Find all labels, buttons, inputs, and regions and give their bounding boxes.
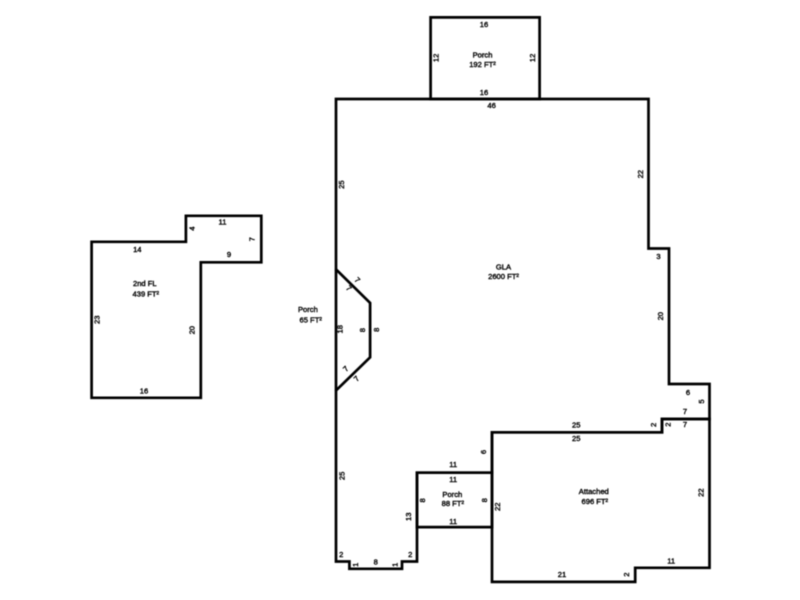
svg-text:11: 11 (667, 556, 675, 565)
svg-text:20: 20 (656, 312, 665, 320)
svg-text:Attached: Attached (579, 487, 609, 496)
svg-text:2: 2 (664, 422, 673, 426)
svg-text:8: 8 (374, 558, 378, 567)
svg-text:65 FT²: 65 FT² (300, 315, 323, 324)
svg-text:11: 11 (449, 475, 457, 484)
svg-text:7: 7 (248, 237, 257, 241)
svg-text:2: 2 (408, 550, 412, 559)
svg-text:8: 8 (418, 498, 427, 502)
svg-text:11: 11 (449, 460, 457, 469)
svg-text:192 FT²: 192 FT² (469, 60, 496, 69)
svg-text:Porch: Porch (442, 490, 462, 499)
svg-text:2nd FL: 2nd FL (133, 279, 157, 288)
svg-text:1: 1 (351, 563, 360, 567)
svg-text:18: 18 (336, 325, 345, 333)
svg-text:7: 7 (683, 420, 687, 429)
svg-text:5: 5 (697, 399, 706, 403)
svg-text:2600 FT²: 2600 FT² (488, 272, 519, 281)
svg-text:25: 25 (572, 421, 580, 430)
svg-text:12: 12 (528, 54, 537, 62)
svg-text:8: 8 (358, 328, 367, 332)
svg-text:12: 12 (432, 54, 441, 62)
svg-text:6: 6 (686, 388, 690, 397)
svg-text:7: 7 (683, 407, 687, 416)
svg-text:23: 23 (93, 316, 102, 324)
svg-text:22: 22 (493, 503, 502, 511)
svg-text:2: 2 (649, 423, 658, 427)
svg-text:11: 11 (449, 517, 457, 526)
svg-text:13: 13 (404, 513, 413, 521)
svg-text:8: 8 (480, 498, 489, 502)
svg-text:14: 14 (133, 245, 141, 254)
svg-text:11: 11 (219, 218, 227, 227)
svg-text:9: 9 (227, 250, 231, 259)
svg-text:Porch: Porch (473, 51, 493, 60)
svg-text:16: 16 (480, 88, 488, 97)
svg-text:8: 8 (372, 328, 381, 332)
svg-text:25: 25 (337, 180, 346, 188)
svg-text:21: 21 (558, 570, 566, 579)
svg-text:25: 25 (572, 434, 580, 443)
svg-text:20: 20 (188, 326, 197, 334)
svg-text:439 FT²: 439 FT² (133, 289, 160, 298)
svg-text:Porch: Porch (298, 305, 318, 314)
svg-text:25: 25 (338, 472, 347, 480)
svg-text:22: 22 (636, 170, 645, 178)
svg-text:2: 2 (622, 573, 631, 577)
svg-text:2: 2 (339, 550, 343, 559)
svg-text:46: 46 (487, 101, 495, 110)
svg-text:16: 16 (140, 387, 148, 396)
svg-text:6: 6 (479, 450, 488, 454)
svg-text:696 FT²: 696 FT² (582, 497, 609, 506)
svg-text:16: 16 (480, 20, 488, 29)
svg-text:4: 4 (188, 227, 197, 231)
svg-text:22: 22 (697, 488, 706, 496)
svg-text:1: 1 (390, 563, 399, 567)
svg-text:GLA: GLA (496, 262, 512, 271)
svg-text:3: 3 (656, 252, 660, 261)
svg-text:88 FT²: 88 FT² (442, 499, 465, 508)
